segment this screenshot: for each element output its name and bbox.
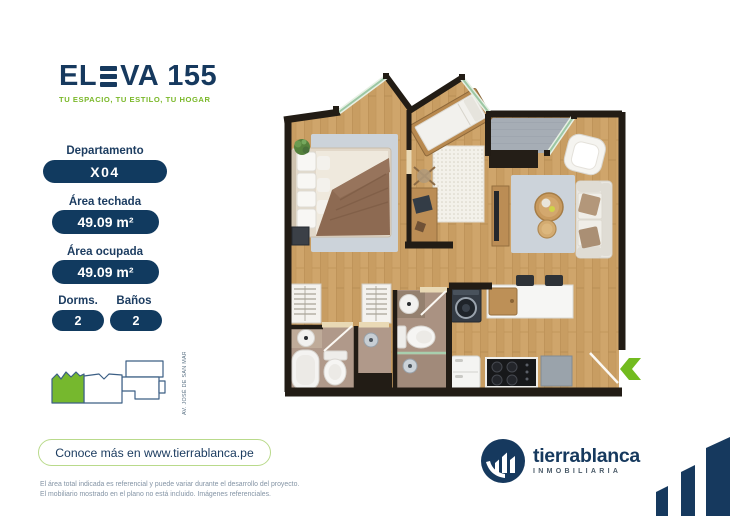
eleva-logo: EL VA 155 TU ESPACIO, TU ESTILO, TU HOGA…: [59, 62, 217, 104]
logo-tagline: TU ESPACIO, TU ESTILO, TU HOGAR: [59, 95, 217, 104]
bathrooms-pill: 2: [110, 310, 162, 331]
covered-area-label: Área techada: [30, 196, 180, 208]
department-label: Departamento: [30, 145, 180, 157]
covered-area-pill: 49.09 m²: [52, 210, 159, 234]
brand-name: tierrablanca: [533, 447, 640, 467]
counter: [541, 356, 572, 386]
washing-machine: [451, 288, 481, 322]
bathroom-1: [290, 327, 354, 391]
bathrooms-label: Baños: [108, 295, 160, 307]
entrance-arrow-icon: [620, 358, 641, 380]
master-bedroom: [291, 134, 398, 252]
shower-floor: [396, 355, 447, 391]
tv-console: [492, 186, 509, 246]
brand-icon: [479, 437, 527, 485]
stove: [485, 357, 538, 388]
occupied-area-pill: 49.09 m²: [52, 260, 159, 284]
toilet: [397, 326, 435, 348]
logo-number: 155: [167, 62, 217, 91]
sofa: [576, 181, 612, 258]
brand-logo: tierrablanca INMOBILIARIA: [479, 437, 640, 485]
tv-wall: [489, 150, 538, 168]
street-label: AV. JOSÉ DE SAN MARTÍN: [181, 352, 188, 415]
keyplan-unit-middle: [84, 374, 122, 403]
eleva-wordmark: EL VA 155: [59, 62, 217, 91]
floor-plan: [268, 45, 658, 413]
keyplan-unit-highlight: [52, 372, 84, 403]
keyplan-unit-right-tab: [159, 381, 165, 393]
sink-faucet: [407, 302, 411, 306]
plant: [294, 139, 310, 155]
brand-subtitle: INMOBILIARIA: [533, 468, 640, 475]
keyplan: AV. JOSÉ DE SAN MARTÍN: [42, 352, 194, 422]
bar-stool: [545, 275, 563, 286]
sink-faucet: [304, 336, 308, 340]
corner-bars-icon: [650, 430, 730, 516]
logo-e-bars-icon: [100, 66, 117, 86]
nightstand: [292, 227, 309, 245]
disclaimer: El área total indicada es referencial y …: [40, 480, 330, 501]
bar-stool: [516, 275, 534, 286]
cta-button[interactable]: Conoce más en www.tierrablanca.pe: [38, 439, 271, 466]
bedrooms-pill: 2: [52, 310, 104, 331]
keyplan-unit-top: [126, 361, 163, 377]
keyplan-unit-right: [122, 377, 159, 399]
fridge: [451, 356, 480, 389]
logo-part1: EL: [59, 62, 97, 91]
double-bed: [291, 148, 391, 237]
bathroom-2: [396, 290, 447, 391]
disclaimer-line1: El área total indicada es referencial y …: [40, 480, 330, 490]
knit-rug: [433, 146, 484, 222]
desk: [409, 188, 437, 244]
occupied-area-label: Área ocupada: [30, 246, 180, 258]
logo-part2: VA: [120, 62, 159, 91]
department-pill: X04: [43, 160, 167, 183]
toilet: [324, 351, 347, 385]
bedrooms-label: Dorms.: [52, 295, 104, 307]
disclaimer-line2: El mobiliario mostrado en el plano no es…: [40, 490, 330, 500]
kitchen-island: [487, 285, 573, 318]
closet-2: [362, 284, 391, 323]
closet-1: [290, 284, 321, 323]
bath-vestibule: [357, 327, 391, 373]
